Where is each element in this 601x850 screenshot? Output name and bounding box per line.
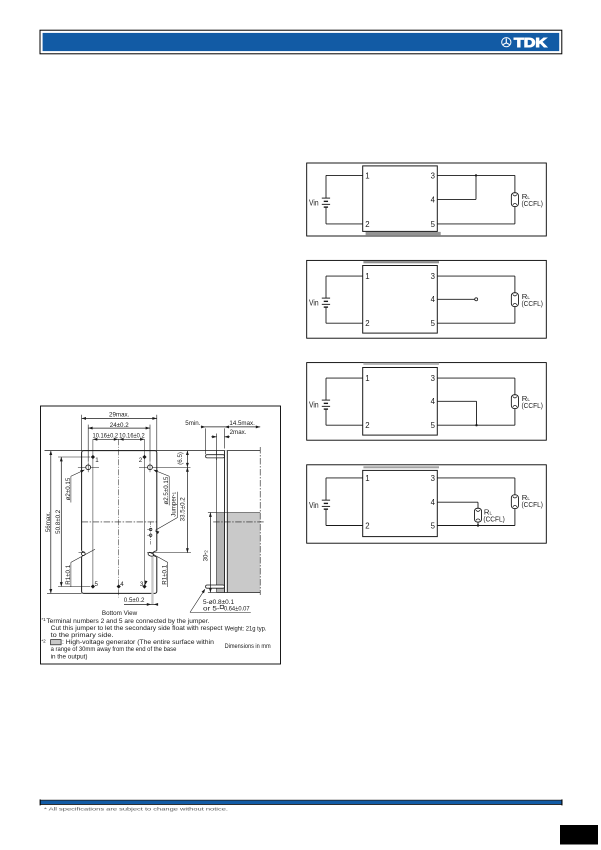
svg-text:a range of 30mm away from the: a range of 30mm away from the end of the… <box>51 646 177 653</box>
svg-text:Dimensions in mm: Dimensions in mm <box>225 643 271 650</box>
svg-text:2: 2 <box>365 220 369 229</box>
svg-text:0.64±0.07: 0.64±0.07 <box>224 606 250 613</box>
svg-text:1: 1 <box>365 171 369 180</box>
svg-text:1: 1 <box>365 374 369 383</box>
svg-text:* All specifications are subje: * All specifications are subject to chan… <box>44 807 228 812</box>
svg-text:24±0.2: 24±0.2 <box>110 422 129 429</box>
svg-text:Vin: Vin <box>309 401 319 410</box>
svg-text:2: 2 <box>139 457 143 464</box>
svg-text:(CCFL): (CCFL) <box>522 299 543 308</box>
svg-text:3: 3 <box>431 171 435 180</box>
svg-text:4: 4 <box>431 195 436 204</box>
svg-text:Terminal numbers 2 and 5 are c: Terminal numbers 2 and 5 are connected b… <box>46 618 209 625</box>
svg-text:to the primary side.: to the primary side. <box>51 632 114 639</box>
svg-text:(CCFL): (CCFL) <box>522 401 543 410</box>
svg-text:Vin: Vin <box>309 501 319 510</box>
svg-text:2max.: 2max. <box>230 429 247 436</box>
svg-text:10.16±0.2: 10.16±0.2 <box>119 432 145 439</box>
svg-text:1: 1 <box>365 474 369 483</box>
svg-text:4: 4 <box>431 295 436 304</box>
svg-text:Jumper*1: Jumper*1 <box>170 491 177 516</box>
svg-text:in the output): in the output) <box>51 653 88 660</box>
svg-text:10.16±0.2: 10.16±0.2 <box>93 432 119 439</box>
svg-text:*2: *2 <box>41 638 46 643</box>
svg-text:: High-voltage generator (The: : High-voltage generator (The entire sur… <box>62 639 214 646</box>
svg-text:1: 1 <box>365 272 369 281</box>
svg-text:33.5±0.2: 33.5±0.2 <box>180 497 187 522</box>
svg-text:Vin: Vin <box>309 199 319 208</box>
svg-text:3: 3 <box>431 272 435 281</box>
svg-text:5: 5 <box>431 421 436 430</box>
svg-text:4: 4 <box>431 397 436 406</box>
svg-text:ø2.5±0.15: ø2.5±0.15 <box>163 476 170 504</box>
svg-text:Vin: Vin <box>309 299 319 308</box>
svg-text:4: 4 <box>431 498 436 507</box>
svg-text:5: 5 <box>95 581 99 588</box>
svg-text:5: 5 <box>431 521 436 530</box>
svg-text:2: 2 <box>365 319 369 328</box>
svg-text:Bottom View: Bottom View <box>102 610 138 617</box>
svg-text:0.5±0.2: 0.5±0.2 <box>124 597 145 604</box>
svg-text:(6.5): (6.5) <box>177 452 184 465</box>
svg-text:(CCFL): (CCFL) <box>522 199 543 208</box>
svg-text:5min.: 5min. <box>185 420 200 427</box>
svg-text:(CCFL): (CCFL) <box>483 514 504 523</box>
svg-text:or 5-: or 5- <box>203 606 220 613</box>
svg-text:3: 3 <box>140 581 144 588</box>
svg-text:29max.: 29max. <box>109 412 130 419</box>
svg-text:50.8±0.2: 50.8±0.2 <box>55 509 62 534</box>
svg-text:5: 5 <box>431 319 436 328</box>
svg-text:30*2: 30*2 <box>202 550 209 562</box>
svg-text:5: 5 <box>431 220 436 229</box>
svg-text:2: 2 <box>365 421 369 430</box>
svg-text:2: 2 <box>365 521 369 530</box>
svg-text:3: 3 <box>431 374 435 383</box>
svg-text:56max.: 56max. <box>45 512 52 533</box>
svg-text:Weight: 21g typ.: Weight: 21g typ. <box>225 625 267 632</box>
svg-text:1: 1 <box>95 457 99 464</box>
svg-text:(CCFL): (CCFL) <box>522 500 543 509</box>
svg-text:TDK: TDK <box>514 35 548 50</box>
svg-text:14.5max.: 14.5max. <box>229 420 255 427</box>
svg-text:3: 3 <box>431 474 435 483</box>
svg-text:4: 4 <box>120 581 124 588</box>
svg-text:Cut this jumper to let the sec: Cut this jumper to let the secondary sid… <box>51 625 223 632</box>
